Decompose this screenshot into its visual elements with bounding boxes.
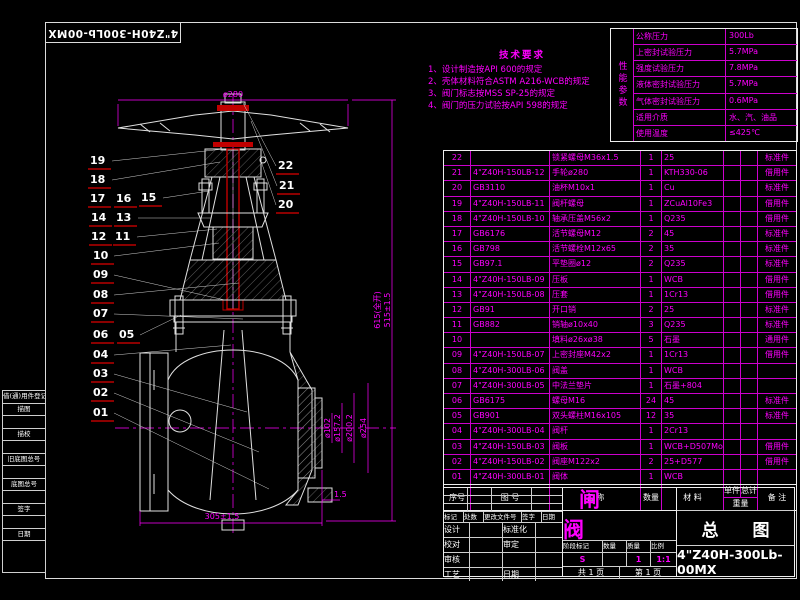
strip-blank [3,541,45,573]
tech-req-item: 3、阀门标志按MSS SP-25的规定 [428,88,616,100]
performance-table-caption: 性能参数 [611,29,634,141]
dim-height-open: 615(全开) [372,291,382,329]
parts-row-06: 06GB6175螺母M162445标准件 [444,393,796,408]
balloon-20: 20 [276,199,299,214]
balloon-05: 05 [117,329,140,344]
balloon-15: 15 [139,192,162,207]
margin-strip: 借(通)用件登记描图描校旧底图总号底图总号签字日期 [2,390,46,573]
technical-requirements: 技术要求 1、设计制造按API 600的规定 2、壳体材料符合ASTM A216… [428,50,616,112]
dim-face-to-face: 305±1.5 [205,512,240,521]
title-block-left: 标记 处数 更改文件号 签字 日期 设计 标准化 校对 审定 审核 工艺 日 [443,487,563,577]
balloon-02: 02 [91,387,114,402]
parts-row-20: 20GB3110油杯M10x11Cu标准件 [444,180,796,195]
role-review: 审核 [444,553,470,567]
parts-row-17: 17GB6176活节螺母M12245标准件 [444,226,796,241]
strip-blank [3,416,45,429]
pages-total: 共 1 页 [563,567,620,579]
strip-blank [3,466,45,479]
parts-row-14: 144"Z40H-150LB-09压板1WCB借用件 [444,272,796,287]
stage-mark-value: S [563,553,603,566]
rev-sign: 签字 [522,512,542,522]
balloon-21: 21 [277,180,300,195]
dim-height-closed: 515±1.5 [383,293,392,328]
title-block-right: 总 图 4"Z40H-300Lb-00MX [676,487,795,577]
balloon-03: 03 [91,368,114,383]
balloon-13: 13 [114,212,137,227]
balloon-19: 19 [88,155,111,170]
rev-doc-no: 更改文件号 [484,512,522,522]
balloon-17: 17 [88,193,111,208]
wedge-right-edge [242,330,256,500]
performance-row: 液体密封试验压力5.7MPa [634,77,797,93]
balloon-08: 08 [91,289,114,304]
parts-table-body: 22锁紧螺母M36x1.5125标准件214"Z40H-150LB-12手轮ø2… [444,151,796,484]
title-block-middle: 闸 阀 阶段标记 数量 质量 比例 S 1 1:1 共 1 页 第 1 页 [562,487,677,577]
drawing-sheet: 4"Z40H-300Lb-00MX [0,0,800,600]
strip-blank [3,441,45,454]
strip-blank [3,516,45,529]
performance-row: 气体密封试验压力0.6MPa [634,94,797,110]
parts-row-05: 05GB901双头螺柱M16x1051235标准件 [444,408,796,423]
performance-table-rows: 公称压力300Lb上密封试验压力5.7MPa强度试验压力7.8MPa液体密封试验… [634,29,797,141]
parts-row-02: 024"Z40H-150LB-02阀座M122x2225+D577借用件 [444,454,796,469]
dim-raised-face-dia: ø157.2 [333,414,342,442]
parts-row-10: 10填料ø26xø385石墨通用件 [444,332,796,347]
role-check: 校对 [444,538,470,552]
balloon-04: 04 [91,349,114,364]
parts-row-09: 094"Z40H-150LB-07上密封座M42x211Cr13借用件 [444,347,796,362]
parts-row-18: 184"Z40H-150LB-10轴承压盖M56x21Q235借用件 [444,211,796,226]
parts-list-table: 22锁紧螺母M36x1.5125标准件214"Z40H-150LB-12手轮ø2… [443,150,797,511]
strip-label: 底图总号 [3,479,45,492]
tech-req-item: 4、阀门的压力试验按API 598的规定 [428,100,616,112]
rev-date: 日期 [542,512,562,522]
parts-row-21: 214"Z40H-150LB-12手轮ø2801KTH330-06借用件 [444,165,796,180]
stage-mark-label: 阶段标记 [563,541,603,552]
performance-row: 使用温度≤425℃ [634,126,797,141]
wedge-left-edge [210,330,224,500]
scale-label: 比例 [651,541,676,552]
strip-label: 签字 [3,504,45,517]
balloon-09: 09 [91,269,114,284]
sheet-type-title: 总 图 [677,511,794,546]
strip-label: 描校 [3,429,45,442]
role-process: 工艺 [444,568,470,581]
qty-label: 数量 [603,541,627,552]
bonnet [180,260,286,300]
parts-row-04: 044"Z40H-300LB-04阀杆12Cr13 [444,423,796,438]
role-date: 日期 [503,568,536,581]
parts-row-08: 084"Z40H-300LB-06阀盖1WCB [444,363,796,378]
performance-row: 上密封试验压力5.7MPa [634,45,797,61]
strip-label: 描图 [3,404,45,417]
balloon-07: 07 [91,308,114,323]
tech-req-title: 技术要求 [428,50,616,62]
parts-row-13: 134"Z40H-150LB-08压套11Cr13借用件 [444,287,796,302]
dim-flange-od: ø254 [359,418,368,438]
dim-bolt-circle: ø200.2 [345,414,354,442]
rev-count: 处数 [464,512,484,522]
balloon-12: 12 [89,231,112,246]
tech-req-item: 1、设计制造按API 600的规定 [428,64,616,76]
dim-raised-face: 1.5 [334,490,347,499]
parts-row-15: 15GB97.1平垫圈ø122Q235标准件 [444,256,796,271]
outlet-flange [298,388,315,478]
drawing-number: 4"Z40H-300Lb-00MX [677,546,794,578]
balloon-18: 18 [88,174,111,189]
scale-value: 1:1 [651,553,676,566]
role-design: 设计 [444,523,470,537]
strip-label: 日期 [3,529,45,542]
parts-row-07: 074"Z40H-300LB-05中法兰垫片1石墨+804 [444,378,796,393]
parts-row-12: 12GB91开口销225标准件 [444,302,796,317]
weight-value: 1 [627,553,651,566]
parts-row-19: 194"Z40H-150LB-11阀杆螺母1ZCuAl10Fe3借用件 [444,196,796,211]
rev-mark: 标记 [444,512,464,522]
pages-current: 第 1 页 [620,567,676,579]
strip-label: 旧底图总号 [3,454,45,467]
tech-req-item: 2、壳体材料符合ASTM A216-WCB的规定 [428,76,616,88]
product-title: 闸 阀 [563,488,676,541]
strip-label: 借(通)用件登记 [3,391,45,404]
dim-handwheel: ø280 [223,90,243,99]
balloon-10: 10 [91,250,114,265]
role-standardization: 标准化 [503,523,536,537]
valve-geometry: ø280 305±1.5 1.5 ø102 ø157.2 ø200.2 ø254… [112,90,396,534]
dim-bore: ø102 [323,418,332,438]
balloon-06: 06 [91,329,114,344]
parts-row-03: 034"Z40H-150LB-03阀板1WCB+D507Mo借用件 [444,439,796,454]
performance-row: 公称压力300Lb [634,29,797,45]
balloon-16: 16 [114,193,137,208]
balloon-22: 22 [276,160,299,175]
parts-row-01: 014"Z40H-300LB-01阀体1WCB [444,469,796,484]
performance-row: 适用介质水、汽、油品 [634,110,797,126]
parts-row-16: 16GB798活节螺栓M12x65235标准件 [444,241,796,256]
strip-blank [3,491,45,504]
parts-row-11: 11GB882销轴ø10x403Q235标准件 [444,317,796,332]
weight-label: 质量 [627,541,651,552]
performance-row: 强度试验压力7.8MPa [634,61,797,77]
performance-parameters-table: 性能参数 公称压力300Lb上密封试验压力5.7MPa强度试验压力7.8MPa液… [610,28,798,142]
role-approve: 审定 [503,538,536,552]
qty-value [603,553,627,566]
material-mark-box [677,488,794,511]
balloon-01: 01 [91,407,114,422]
balloon-14: 14 [89,212,112,227]
parts-row-22: 22锁紧螺母M36x1.5125标准件 [444,151,796,165]
balloon-11: 11 [113,231,136,246]
